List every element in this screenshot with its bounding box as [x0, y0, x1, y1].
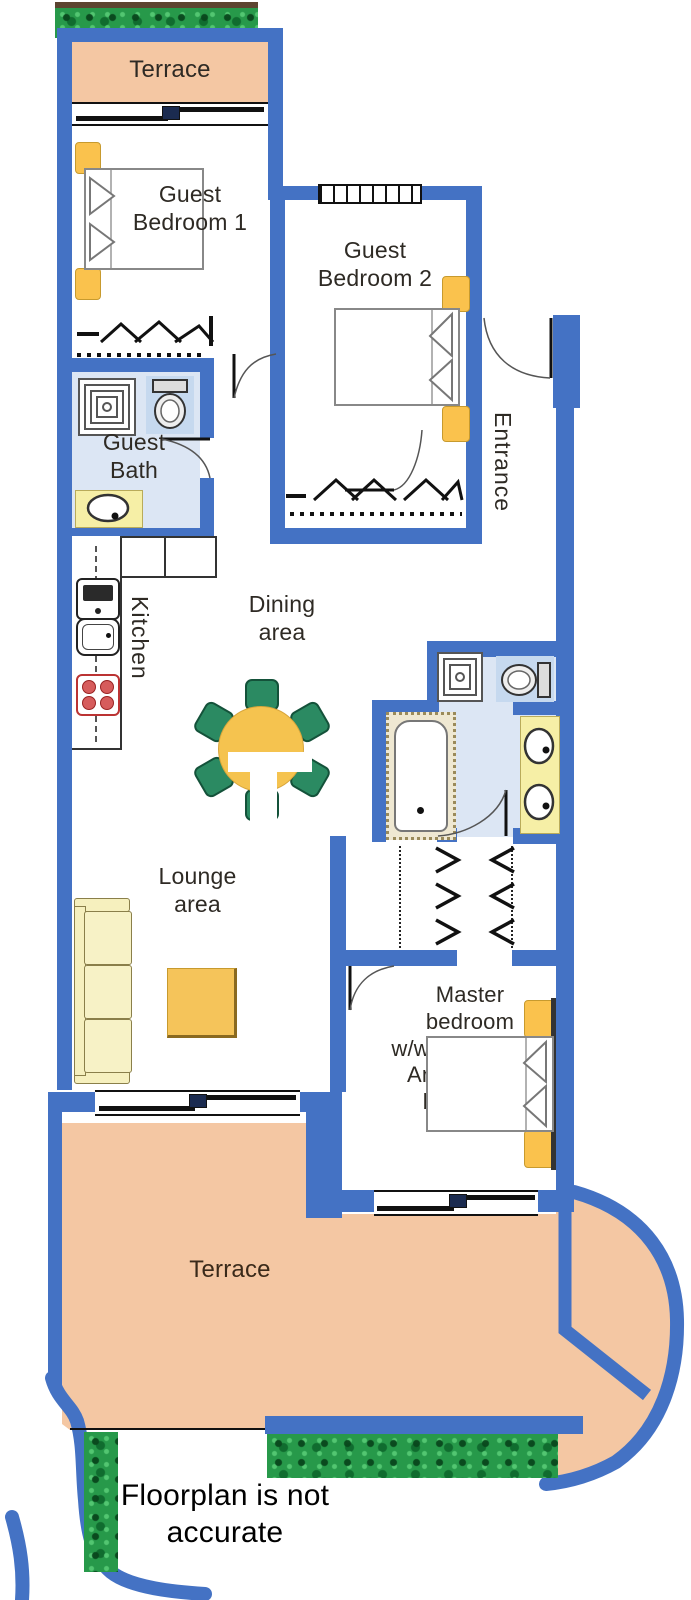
- bed-master: [426, 1036, 554, 1132]
- sliding-door-terrace-top: [72, 102, 268, 126]
- wall-master-left: [330, 836, 346, 1092]
- wall-closet-bottom-b: [512, 950, 556, 966]
- door-guest-bedroom-1: [232, 352, 278, 402]
- oven: [76, 578, 120, 620]
- closet-rail-line: [399, 846, 401, 948]
- toilet-ensuite: [498, 658, 552, 702]
- terrace-bottom-label: Terrace: [160, 1255, 300, 1284]
- terrace-edge-line: [70, 1428, 273, 1430]
- wall-sink2-top: [513, 701, 556, 715]
- kitchen-sink: [76, 618, 120, 656]
- door-guest-bath: [160, 436, 212, 480]
- disclaimer-text: Floorplan is not accurate: [95, 1478, 355, 1551]
- wall-bath-top: [57, 358, 214, 372]
- door-guest-bedroom-2: [344, 428, 426, 494]
- lounge-area-label: Lounge area: [135, 862, 260, 918]
- door-entrance: [482, 316, 554, 382]
- greenery-bottom-middle: [267, 1434, 558, 1478]
- shower-ensuite: [437, 652, 483, 702]
- floorplan: Terrace Guest Bedroom 1: [0, 0, 691, 1600]
- wall-bath-right-b: [200, 478, 214, 530]
- door-ensuite: [436, 788, 510, 840]
- terrace-corner-curve: [12, 1517, 23, 1600]
- sink-ensuite-double: [520, 716, 558, 832]
- dining-area-label: Dining area: [222, 590, 342, 646]
- wall-terrace-left: [48, 1092, 62, 1386]
- wall-terrace-divider: [306, 1092, 342, 1218]
- table-marker-stem: [250, 752, 277, 852]
- terrace-bottom-band: [265, 1416, 583, 1434]
- kitchen-label: Kitchen: [126, 596, 153, 680]
- toilet-guest: [148, 378, 192, 432]
- sliding-door-lounge: [95, 1090, 300, 1116]
- bed-guest-2: [334, 308, 460, 406]
- wardrobe-guest-1: [75, 312, 215, 360]
- wall-top: [57, 28, 283, 42]
- nightstand: [442, 406, 470, 442]
- entrance-label: Entrance: [489, 412, 516, 512]
- wall-alcove-left: [372, 700, 386, 842]
- wall-master-bottom-b: [536, 1190, 574, 1212]
- wall-entrance-pillar: [553, 315, 580, 408]
- coffee-table: [167, 968, 237, 1038]
- nightstand: [442, 276, 470, 312]
- window-guest-bedroom-2: [318, 184, 422, 204]
- sink-guest: [75, 490, 141, 526]
- wall-gb1-right: [268, 28, 283, 200]
- kitchen-counter-top-a: [118, 536, 168, 578]
- hob: [76, 674, 120, 716]
- kitchen-counter-top-b: [164, 536, 217, 578]
- wall-gb2-right: [466, 186, 482, 538]
- sliding-door-master: [374, 1190, 538, 1216]
- guest-bedroom-1-label: Guest Bedroom 1: [110, 180, 270, 236]
- terrace-top-label: Terrace: [70, 55, 270, 84]
- wall-gb2-bottom: [283, 528, 482, 544]
- wall-left-main: [57, 28, 72, 1090]
- sofa: [74, 898, 136, 1084]
- wall-bath-right-a: [200, 358, 214, 438]
- closet-hangers: [434, 844, 516, 954]
- nightstand: [75, 268, 101, 300]
- guest-bedroom-2-label: Guest Bedroom 2: [295, 236, 455, 292]
